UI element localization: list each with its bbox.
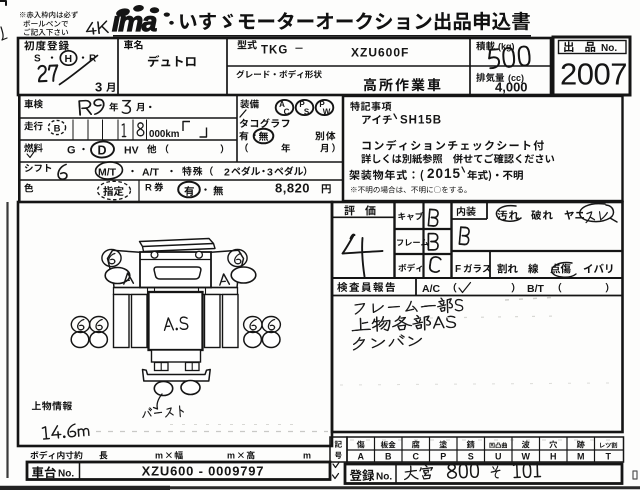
svg-text:C: C <box>412 452 419 462</box>
svg-text:m: m <box>227 451 235 461</box>
svg-text:3: 3 <box>95 80 102 95</box>
svg-text:F: F <box>455 264 461 275</box>
svg-text:D: D <box>98 144 107 158</box>
svg-text:No.: No. <box>376 472 392 483</box>
svg-text:A: A <box>357 452 364 462</box>
svg-text:U: U <box>495 452 502 462</box>
svg-text:C: C <box>284 108 290 117</box>
svg-text:B: B <box>54 124 61 135</box>
svg-text:W: W <box>323 108 331 117</box>
svg-text:S: S <box>304 108 310 117</box>
svg-text:SH15B: SH15B <box>400 115 442 127</box>
svg-text:No.: No. <box>601 43 617 54</box>
svg-text:W: W <box>521 452 530 462</box>
svg-text:H: H <box>550 452 557 462</box>
svg-text:B: B <box>385 452 392 462</box>
svg-text:P: P <box>440 452 446 462</box>
svg-text:A/C: A/C <box>422 283 441 295</box>
svg-text:G: G <box>67 145 76 157</box>
svg-text:m: m <box>155 451 163 461</box>
svg-text:S: S <box>468 452 474 462</box>
svg-text:2: 2 <box>224 167 230 179</box>
svg-text:000km: 000km <box>149 129 180 140</box>
svg-text:HV: HV <box>124 145 139 157</box>
svg-text:B/T: B/T <box>527 283 545 295</box>
svg-text:m: m <box>303 451 311 461</box>
svg-text:H: H <box>65 53 73 65</box>
svg-text:M: M <box>577 452 585 462</box>
svg-text:XZU600F: XZU600F <box>351 46 409 60</box>
svg-text:ıma: ıma <box>112 6 157 37</box>
svg-text:2007: 2007 <box>560 57 627 92</box>
svg-text:2015: 2015 <box>427 166 461 181</box>
svg-text:R: R <box>145 183 152 194</box>
svg-text:3: 3 <box>267 167 273 179</box>
svg-text:XZU600 - 0009797: XZU600 - 0009797 <box>142 464 265 479</box>
svg-text:A/T: A/T <box>142 167 160 179</box>
svg-text:4,000: 4,000 <box>495 80 528 95</box>
svg-text:S: S <box>34 54 41 65</box>
svg-text:M/T: M/T <box>98 167 117 179</box>
svg-text:TKG: TKG <box>261 45 288 57</box>
svg-text:T: T <box>605 452 611 462</box>
svg-text:No.: No. <box>58 469 74 480</box>
svg-text:8,820: 8,820 <box>275 181 310 196</box>
